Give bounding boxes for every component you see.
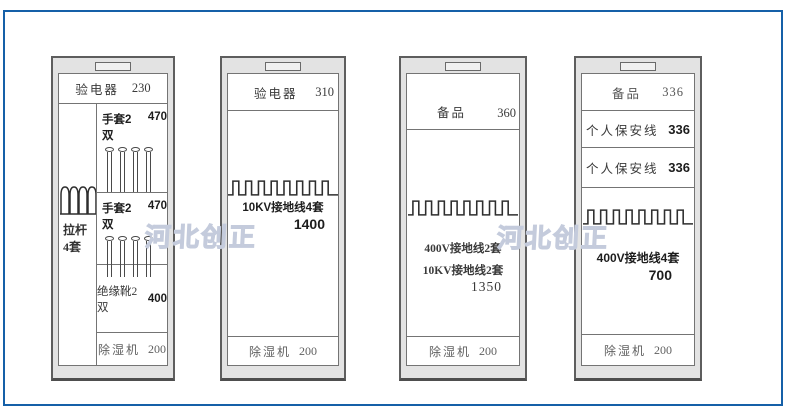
cabinet-2-interior: 验电器 310 10KV接地线4套 1400 除湿机 200 xyxy=(227,73,339,366)
glove-shelf-1: 手套2双 470 xyxy=(97,104,167,193)
pole-shelf-label: 拉杆 4套 xyxy=(59,222,96,256)
glove-shelf-2: 手套2双 470 xyxy=(97,193,167,265)
shelf-value: 1400 xyxy=(228,216,338,232)
cabinet-1-handle xyxy=(95,62,131,71)
safety-wire-shelf-2: 个人保安线 336 xyxy=(582,148,694,188)
dehumidifier-shelf: 除湿机 200 xyxy=(228,336,338,365)
dehumidifier-shelf: 除湿机 200 xyxy=(407,336,519,365)
cabinet-4-main-shelf: 400V接地线4套 700 xyxy=(582,188,694,334)
shelf-value: 310 xyxy=(315,85,334,100)
shelf-value: 200 xyxy=(299,344,317,359)
shelf-label: 个人保安线 xyxy=(586,120,659,139)
shelf-label: 除湿机 xyxy=(429,343,471,360)
shelf-value: 1350 xyxy=(407,279,519,295)
cabinet-2-handle xyxy=(265,62,301,71)
ground-wire-hooks-icon xyxy=(228,177,338,196)
shelf-label: 个人保安线 xyxy=(586,158,659,177)
shelf-label: 除湿机 xyxy=(604,342,646,359)
cabinet-2-main-shelf: 10KV接地线4套 1400 xyxy=(228,111,338,336)
cabinet-3-handle xyxy=(445,62,481,71)
shelf-value: 200 xyxy=(654,343,672,358)
ground-wire-hooks-icon xyxy=(408,197,518,216)
shelf-value: 200 xyxy=(148,342,166,357)
shelf-label: 绝缘靴2双 xyxy=(97,283,142,315)
cabinet-3-header-shelf: 备品 360 xyxy=(407,74,519,130)
cabinet-1-header-shelf: 验电器 230 xyxy=(59,74,167,104)
hanging-rods-icon xyxy=(60,184,96,215)
shelf-label-row: 手套2双 470 xyxy=(97,193,167,236)
shelf-label: 10KV接地线2套 xyxy=(407,262,519,278)
cabinet-3-main-shelf: 400V接地线2套 10KV接地线2套 1350 xyxy=(407,130,519,336)
shelf-label-row: 手套2双 470 xyxy=(97,104,167,147)
dehumidifier-shelf: 除湿机 200 xyxy=(97,333,167,365)
cabinet-1-interior: 验电器 230 拉杆 4套 手套2双 xyxy=(58,73,168,366)
cabinet-2: 验电器 310 10KV接地线4套 1400 除湿机 200 xyxy=(220,56,346,381)
cabinet-1: 验电器 230 拉杆 4套 手套2双 xyxy=(51,56,175,381)
cabinet-2-header-shelf: 验电器 310 xyxy=(228,74,338,111)
shelf-value: 700 xyxy=(582,267,694,283)
cabinet-4: 备品 336 个人保安线 336 个人保安线 336 400V接地线4套 700… xyxy=(574,56,702,381)
pin-icon xyxy=(144,147,153,192)
shelf-label: 400V接地线4套 xyxy=(582,249,694,266)
shelf-value: 400 xyxy=(148,293,167,305)
cabinet-4-interior: 备品 336 个人保安线 336 个人保安线 336 400V接地线4套 700… xyxy=(581,73,695,366)
cabinet-3-interior: 备品 360 400V接地线2套 10KV接地线2套 1350 除湿机 200 xyxy=(406,73,520,366)
pin-icon xyxy=(131,147,140,192)
shelf-value: 336 xyxy=(668,122,690,137)
cabinet-4-handle xyxy=(620,62,656,71)
shelf-label: 除湿机 xyxy=(98,341,140,358)
shelf-label: 10KV接地线4套 xyxy=(228,199,338,215)
pin-icon xyxy=(105,147,114,192)
shelf-label: 验电器 xyxy=(75,79,119,98)
shelf-value: 200 xyxy=(479,344,497,359)
shelf-value: 336 xyxy=(668,160,690,175)
cabinet-1-pole-column: 拉杆 4套 xyxy=(59,104,97,365)
shelf-value: 360 xyxy=(497,106,516,121)
shelf-label: 除湿机 xyxy=(249,343,291,360)
pin-icon xyxy=(118,147,127,192)
safety-wire-shelf-1: 个人保安线 336 xyxy=(582,111,694,148)
shelf-value: 336 xyxy=(662,85,684,100)
cabinet-4-header-shelf: 备品 336 xyxy=(582,74,694,111)
shelf-label: 备品 xyxy=(612,83,641,102)
shelf-value: 230 xyxy=(132,81,151,96)
cabinet-layout-diagram: 验电器 230 拉杆 4套 手套2双 xyxy=(0,0,790,416)
cabinet-1-body: 拉杆 4套 手套2双 470 xyxy=(59,104,167,365)
ground-wire-hooks-icon xyxy=(583,206,693,225)
cabinet-3: 备品 360 400V接地线2套 10KV接地线2套 1350 除湿机 200 xyxy=(399,56,527,381)
shelf-label: 备品 xyxy=(437,102,466,121)
hanger-pins xyxy=(105,147,167,192)
shelf-label: 验电器 xyxy=(254,83,298,102)
shelf-label: 400V接地线2套 xyxy=(407,240,519,256)
cabinet-1-right-column: 手套2双 470 手套2双 470 xyxy=(97,104,167,365)
boots-shelf: 绝缘靴2双 400 xyxy=(97,265,167,333)
dehumidifier-shelf: 除湿机 200 xyxy=(582,334,694,365)
